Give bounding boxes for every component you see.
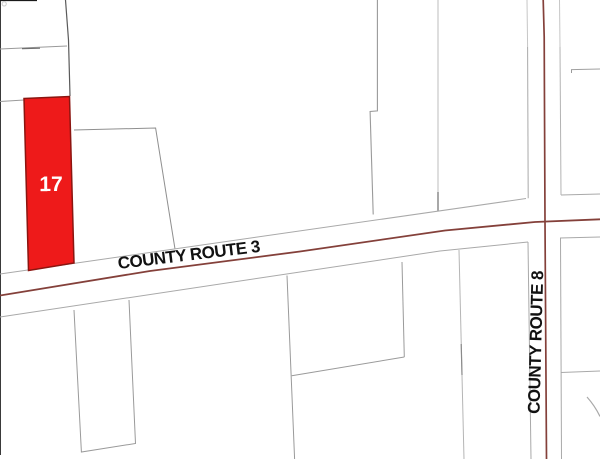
svg-text:17: 17 [39,173,62,196]
svg-text:COUNTY ROUTE 8: COUNTY ROUTE 8 [525,271,548,414]
